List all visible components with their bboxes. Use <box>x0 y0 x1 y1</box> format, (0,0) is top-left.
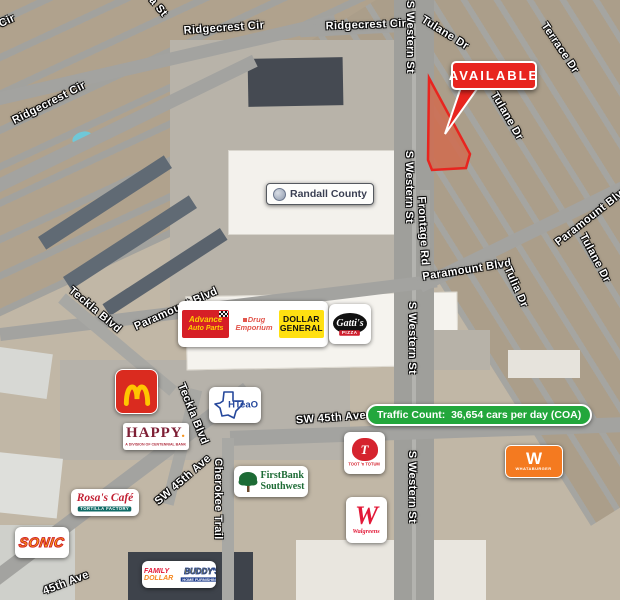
county-seal-icon <box>273 188 286 201</box>
buddys-name: BUDDY'S <box>184 568 216 576</box>
rosas-name: Rosa's Café <box>77 493 134 505</box>
firstbank-line2: Southwest <box>261 482 305 493</box>
happy-tagline: A DIVISION OF CENTENNIAL BANK <box>126 443 187 447</box>
family-dollar-logo: FAMILY DOLLAR <box>142 568 173 582</box>
family-dollar-buddys-logos: FAMILY DOLLAR BUDDY'S HOME FURNISHINGS <box>142 561 216 588</box>
family-dollar-line1: FAMILY <box>144 568 169 575</box>
rosas-tagline: TORTILLA FACTORY <box>78 506 132 511</box>
buddys-tagline: HOME FURNISHINGS <box>181 577 216 581</box>
tree-icon <box>238 471 258 493</box>
randall-county-text: Randall County <box>290 188 367 200</box>
gattis-sub: PIZZA <box>339 330 360 335</box>
available-label: AVAILABLE <box>449 68 539 83</box>
drug-line2: Emporium <box>235 324 272 332</box>
traffic-count-text: Traffic Count: 36,654 cars per day (COA) <box>377 409 581 421</box>
tootn-name: TOOT 'n TOTUM <box>349 463 380 467</box>
walgreens-name: Walgreens <box>353 527 380 534</box>
gattis-name: Gatti's <box>336 318 363 329</box>
walgreens-logo: W Walgreens <box>346 497 387 543</box>
mcdonalds-logo <box>115 369 158 414</box>
tootn-totum-logo: T TOOT 'n TOTUM <box>344 432 385 474</box>
advance-line1: Advance <box>189 316 222 324</box>
randall-county-label: Randall County <box>266 183 374 205</box>
aerial-map[interactable]: Cira StRidgecrest CirRidgecrest CirS Wes… <box>0 0 620 600</box>
sonic-logo: SONIC <box>15 527 69 558</box>
checkered-flag-icon <box>219 311 228 317</box>
drug-emporium-logo: Drug Emporium <box>233 316 274 333</box>
hteao-name: HTeaO <box>228 400 258 411</box>
happy-name: HAPPY. <box>126 426 186 441</box>
hteao-logo: HTeaO <box>209 387 261 423</box>
gattis-pizza-logo: Gatti's PIZZA <box>329 304 371 344</box>
traffic-count-badge: Traffic Count: 36,654 cars per day (COA) <box>366 404 592 426</box>
advance-auto-parts-logo: Advance Auto Parts <box>182 310 229 338</box>
firstbank-line1: FirstBank <box>261 471 304 482</box>
advance-line2: Auto Parts <box>188 325 223 332</box>
available-banner[interactable]: AVAILABLE <box>451 61 537 90</box>
tootn-initial: T <box>361 442 369 458</box>
dg-line2: GENERAL <box>280 324 323 333</box>
square-bullet-icon <box>243 318 247 322</box>
family-dollar-line2: DOLLAR <box>144 575 173 582</box>
golden-arches-icon <box>120 376 154 408</box>
tootn-emblem-icon: T <box>352 438 378 461</box>
happy-dot: . <box>181 425 186 441</box>
whataburger-logo: W WHATABURGER <box>505 445 563 478</box>
happy-bank-logo: HAPPY. A DIVISION OF CENTENNIAL BANK <box>123 423 189 450</box>
walgreens-w-icon: W <box>355 505 378 527</box>
sonic-name: SONIC <box>18 535 65 550</box>
buddys-logo: BUDDY'S HOME FURNISHINGS <box>177 568 216 582</box>
dollar-general-logo: DOLLAR GENERAL <box>279 310 324 338</box>
whataburger-name: WHATABURGER <box>516 467 552 472</box>
rosas-cafe-logo: Rosa's Café TORTILLA FACTORY <box>71 489 139 516</box>
strip-mall-logos: Advance Auto Parts Drug Emporium DOLLAR … <box>178 301 328 347</box>
firstbank-southwest-logo: FirstBank Southwest <box>234 466 308 497</box>
whataburger-w-icon: W <box>526 451 542 466</box>
